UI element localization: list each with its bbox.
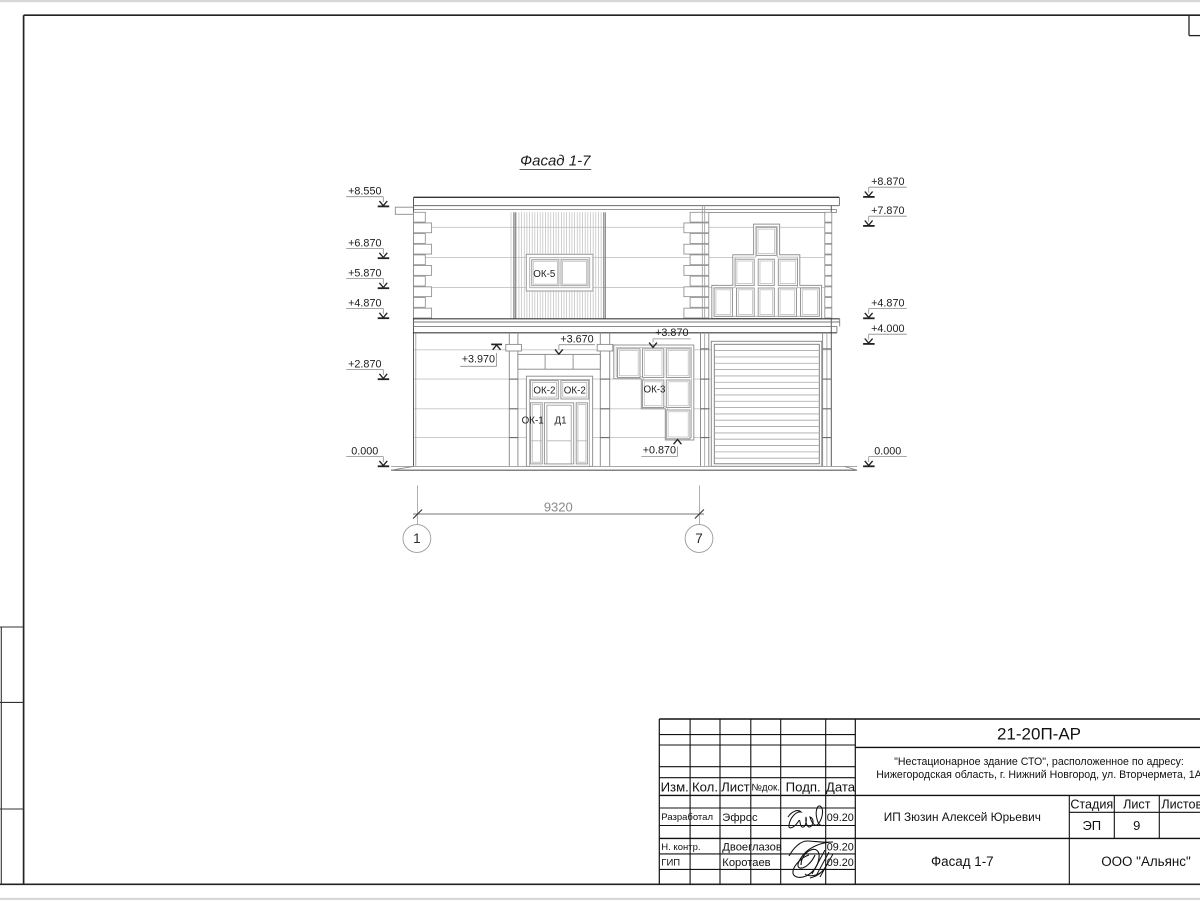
svg-text:Фасад 1-7: Фасад 1-7 [520, 152, 591, 169]
svg-text:ОК-2: ОК-2 [564, 385, 586, 396]
svg-text:ОК-2: ОК-2 [533, 385, 555, 396]
svg-text:Эфрос: Эфрос [722, 812, 758, 824]
svg-text:Н. контр.: Н. контр. [661, 842, 700, 853]
svg-text:7: 7 [695, 531, 703, 546]
svg-text:Лист: Лист [721, 779, 750, 794]
svg-text:+7.870: +7.870 [871, 205, 904, 217]
svg-text:ОК-3: ОК-3 [643, 384, 666, 395]
svg-text:Двоеглазов: Двоеглазов [722, 842, 782, 854]
svg-text:"Нестационарное здание СТО", р: "Нестационарное здание СТО", расположенн… [894, 756, 1184, 768]
svg-text:0.000: 0.000 [351, 446, 378, 458]
svg-text:+0.870: +0.870 [643, 445, 676, 457]
svg-text:Изм.: Изм. [661, 779, 689, 794]
svg-text:+5.870: +5.870 [348, 268, 381, 280]
svg-text:+4.000: +4.000 [871, 323, 904, 335]
svg-text:+8.550: +8.550 [348, 186, 381, 198]
svg-text:+4.870: +4.870 [348, 298, 381, 310]
svg-text:ООО "Альянс": ООО "Альянс" [1101, 854, 1191, 869]
svg-text:1: 1 [413, 531, 421, 546]
svg-text:Фасад 1-7: Фасад 1-7 [931, 854, 994, 869]
svg-text:Дата: Дата [826, 779, 856, 794]
svg-text:0.000: 0.000 [874, 446, 901, 458]
svg-text:09.20: 09.20 [827, 841, 854, 853]
svg-text:21-20П-АР: 21-20П-АР [997, 724, 1081, 743]
svg-text:№док.: №док. [751, 783, 780, 794]
svg-text:+6.870: +6.870 [348, 238, 381, 250]
svg-text:ОК-1: ОК-1 [522, 415, 544, 426]
svg-text:Кол.: Кол. [692, 779, 718, 794]
svg-text:+4.870: +4.870 [871, 298, 904, 310]
svg-text:+8.870: +8.870 [871, 176, 904, 188]
svg-text:09.20: 09.20 [827, 812, 854, 824]
svg-text:+3.870: +3.870 [655, 327, 688, 339]
svg-text:Разработал: Разработал [661, 812, 713, 823]
svg-text:+3.670: +3.670 [560, 333, 593, 345]
svg-text:ЭП: ЭП [1082, 818, 1101, 833]
svg-text:Листов: Листов [1161, 797, 1200, 811]
svg-text:+3.970: +3.970 [462, 354, 495, 366]
svg-text:Подп.: Подп. [786, 779, 821, 794]
svg-text:Коротаев: Коротаев [722, 857, 770, 869]
svg-text:9: 9 [1133, 818, 1140, 833]
svg-text:Лист: Лист [1123, 797, 1151, 811]
svg-text:ИП Зюзин Алексей Юрьевич: ИП Зюзин Алексей Юрьевич [884, 810, 1041, 824]
svg-text:ГИП: ГИП [661, 857, 680, 868]
svg-text:9320: 9320 [544, 499, 573, 514]
svg-text:Д1: Д1 [555, 415, 567, 426]
svg-text:Стадия: Стадия [1070, 797, 1113, 811]
svg-text:+2.870: +2.870 [348, 359, 381, 371]
svg-text:ОК-5: ОК-5 [533, 269, 556, 280]
svg-text:Нижегородская область, г. Нижн: Нижегородская область, г. Нижний Новгоро… [876, 769, 1200, 781]
